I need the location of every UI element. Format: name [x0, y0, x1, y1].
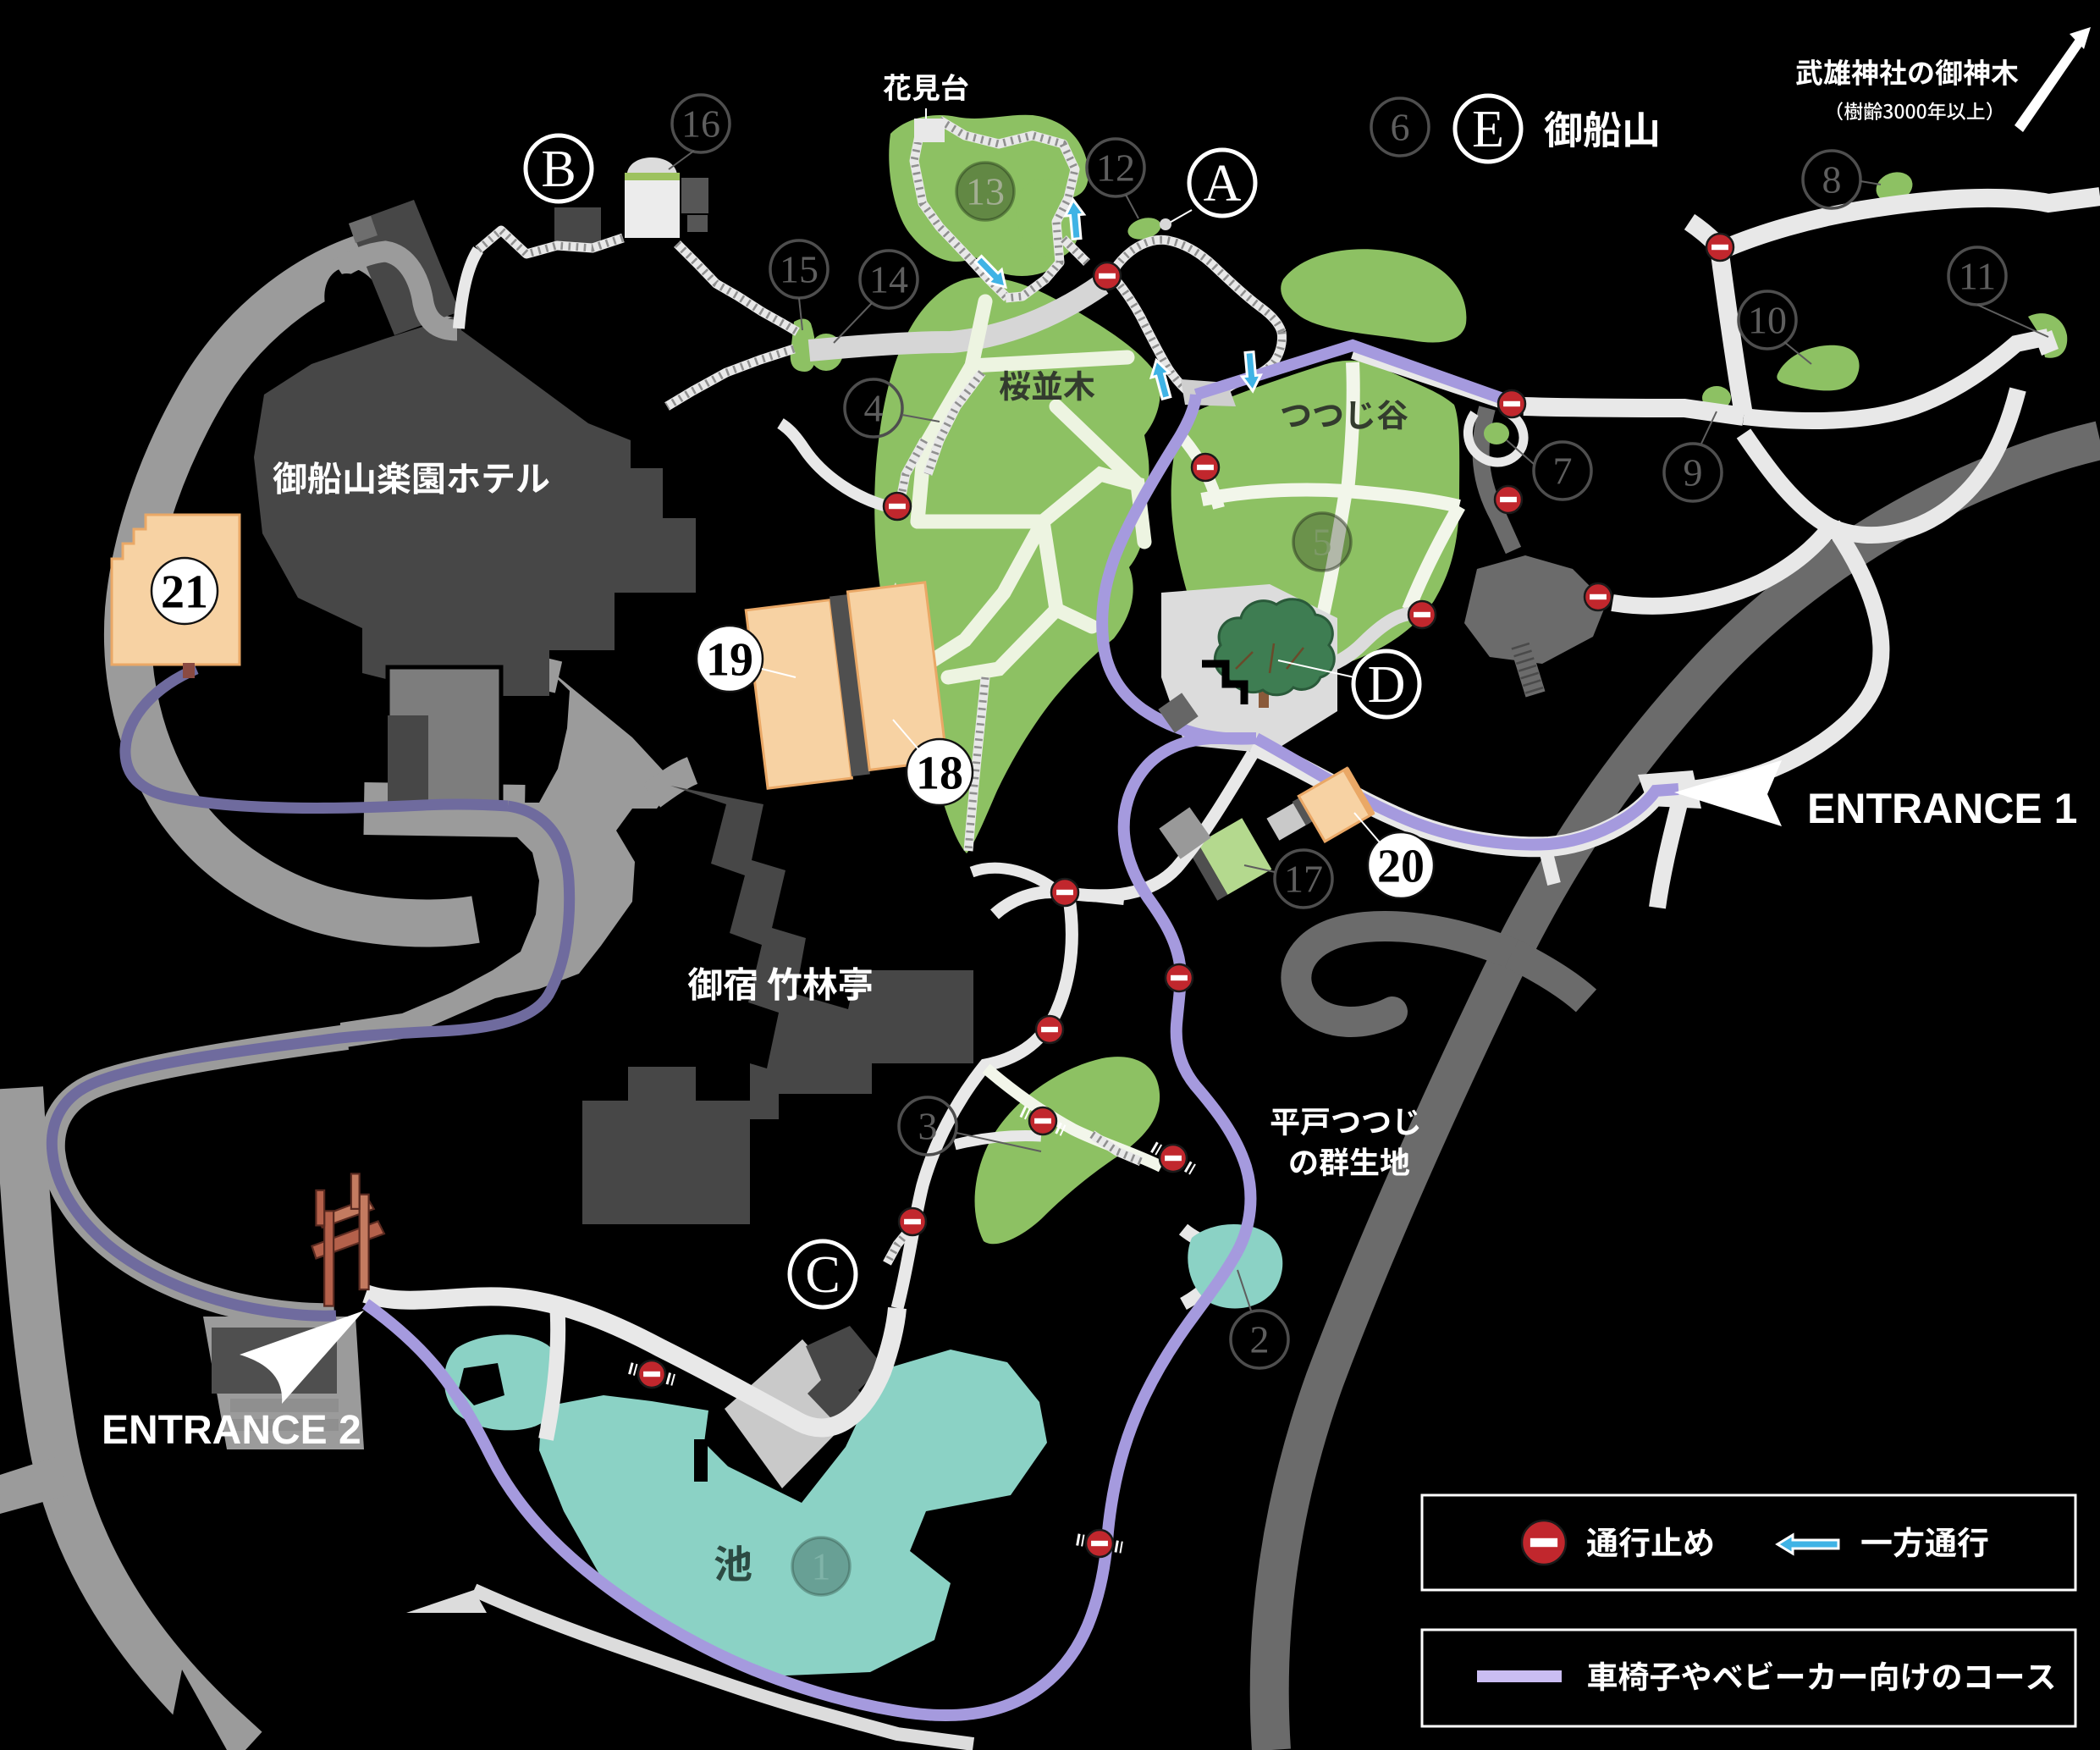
svg-text:6: 6 [1391, 106, 1410, 149]
svg-text:16: 16 [681, 102, 720, 146]
svg-text:ENTRANCE 1: ENTRANCE 1 [1807, 785, 2077, 832]
svg-text:13: 13 [966, 170, 1005, 213]
svg-text:18: 18 [916, 748, 963, 800]
svg-text:D: D [1368, 656, 1406, 714]
svg-text:10: 10 [1748, 299, 1787, 342]
svg-text:4: 4 [864, 387, 884, 430]
svg-text:B: B [541, 141, 576, 198]
svg-text:11: 11 [1959, 255, 1996, 298]
svg-text:14: 14 [869, 258, 908, 301]
svg-text:E: E [1472, 101, 1504, 158]
svg-text:3: 3 [918, 1105, 938, 1148]
svg-text:8: 8 [1822, 158, 1842, 201]
svg-text:20: 20 [1377, 841, 1425, 893]
svg-text:A: A [1204, 155, 1242, 213]
svg-text:1: 1 [812, 1545, 831, 1588]
svg-text:2: 2 [1250, 1318, 1270, 1361]
svg-text:12: 12 [1096, 146, 1135, 190]
svg-text:ENTRANCE 2: ENTRANCE 2 [102, 1408, 361, 1453]
svg-text:5: 5 [1313, 521, 1332, 564]
svg-text:C: C [805, 1246, 840, 1304]
svg-text:17: 17 [1284, 858, 1323, 901]
svg-text:9: 9 [1684, 451, 1703, 494]
svg-text:15: 15 [780, 248, 819, 291]
svg-text:21: 21 [161, 566, 208, 619]
svg-text:19: 19 [706, 634, 753, 687]
svg-text:7: 7 [1553, 450, 1573, 493]
